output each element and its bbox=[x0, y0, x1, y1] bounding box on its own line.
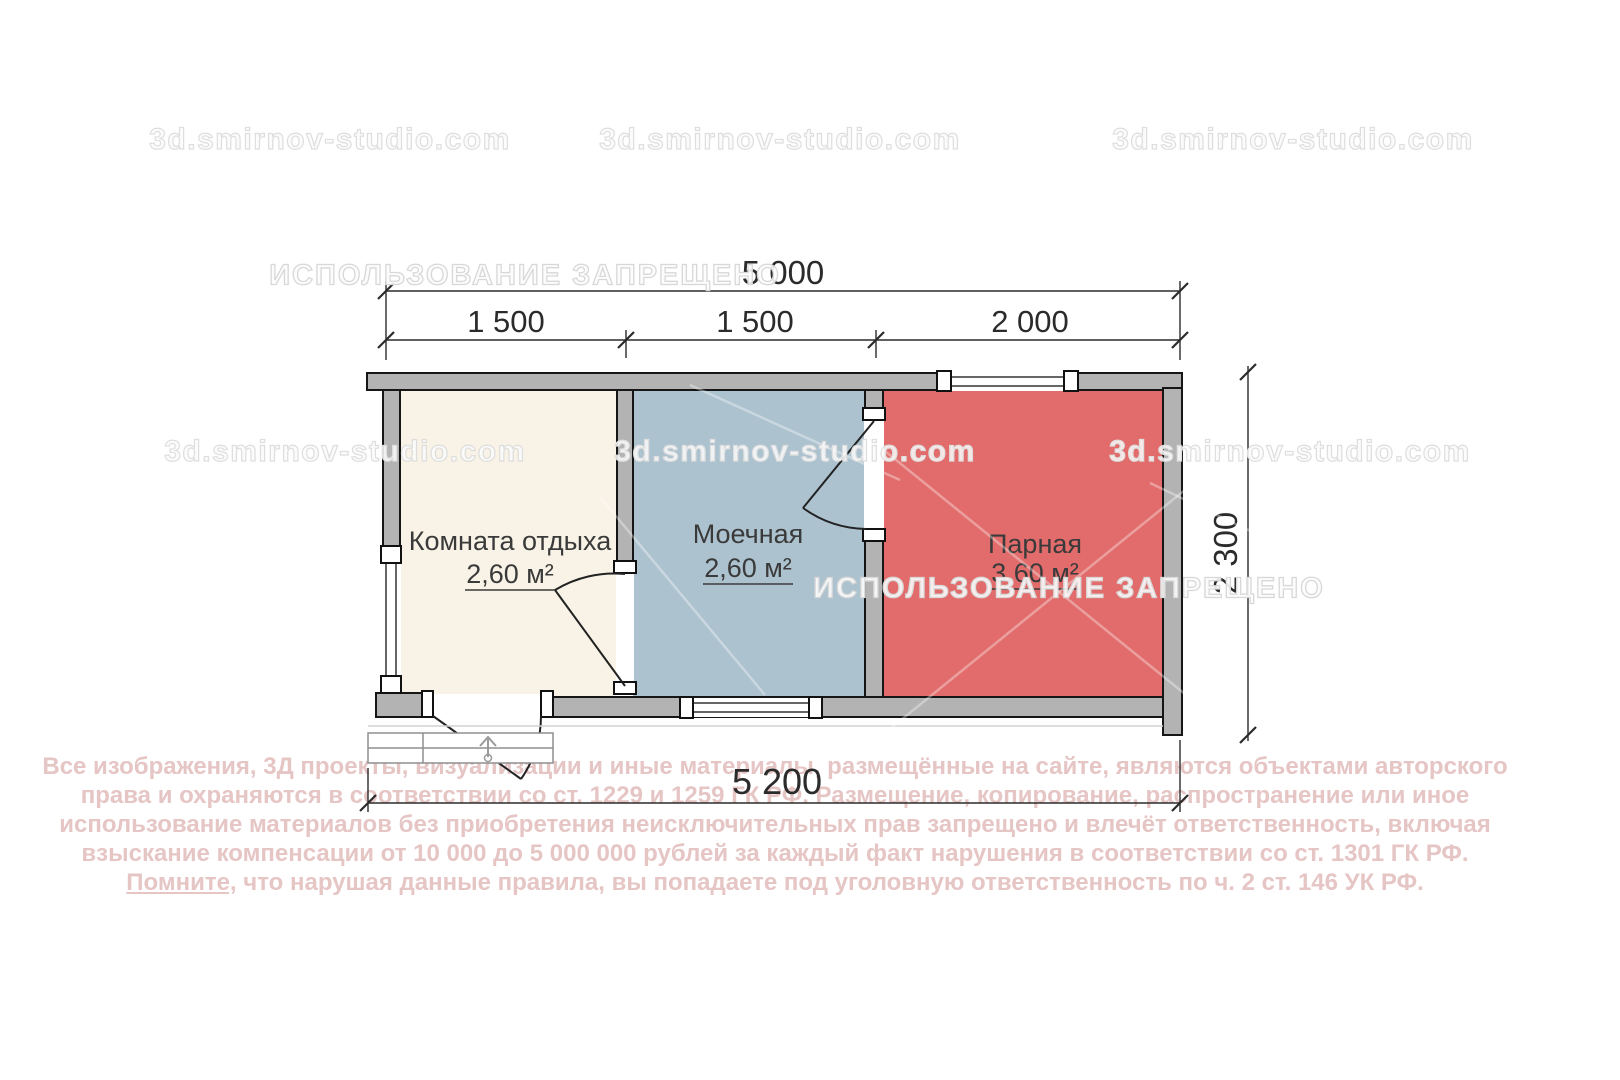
entrance-porch bbox=[368, 733, 553, 763]
wall-interior-2-top bbox=[865, 390, 883, 409]
site-watermark: 3d.smirnov-studio.com bbox=[149, 123, 511, 157]
dim-segment-1: 1 500 bbox=[467, 304, 545, 339]
wall-interior-2-bottom bbox=[865, 541, 883, 697]
window-top-opening bbox=[937, 372, 1078, 391]
room-wash-area: 2,60 м² bbox=[704, 553, 792, 583]
site-watermark: 3d.smirnov-studio.com bbox=[614, 435, 976, 469]
site-watermark: 3d.smirnov-studio.com bbox=[164, 435, 526, 469]
window-bottom-opening bbox=[680, 698, 822, 717]
dim-bottom-total: 5 200 bbox=[732, 761, 822, 802]
room-rest-name: Комната отдыха bbox=[409, 526, 612, 556]
window-left-opening bbox=[381, 546, 401, 693]
wall-corner-bottom-left bbox=[376, 693, 422, 717]
site-watermark: 3d.smirnov-studio.com bbox=[1109, 435, 1471, 469]
floor-plan-page: Все изображения, 3Д проекты, визуализаци… bbox=[0, 0, 1620, 1080]
room-steam-name: Парная bbox=[988, 529, 1082, 559]
room-wash-name: Моечная bbox=[693, 519, 804, 549]
room-rest-area: 2,60 м² bbox=[466, 559, 554, 589]
entrance-door-opening bbox=[433, 694, 541, 719]
door-1-2-opening bbox=[616, 572, 634, 683]
site-watermark: 3d.smirnov-studio.com bbox=[1112, 123, 1474, 157]
usage-prohibited-watermark: ИСПОЛЬЗОВАНИЕ ЗАПРЕЩЕНО bbox=[813, 573, 1325, 606]
wall-interior-1 bbox=[617, 390, 633, 563]
bathhouse-floor-plan: 5 000 1 500 1 500 2 000 2 300 5 200 Комн… bbox=[0, 0, 1620, 1080]
dim-segment-2: 1 500 bbox=[716, 304, 794, 339]
usage-prohibited-watermark: ИСПОЛЬЗОВАНИЕ ЗАПРЕЩЕНО bbox=[269, 260, 781, 293]
site-watermark: 3d.smirnov-studio.com bbox=[599, 123, 961, 157]
dim-segment-3: 2 000 bbox=[991, 304, 1069, 339]
